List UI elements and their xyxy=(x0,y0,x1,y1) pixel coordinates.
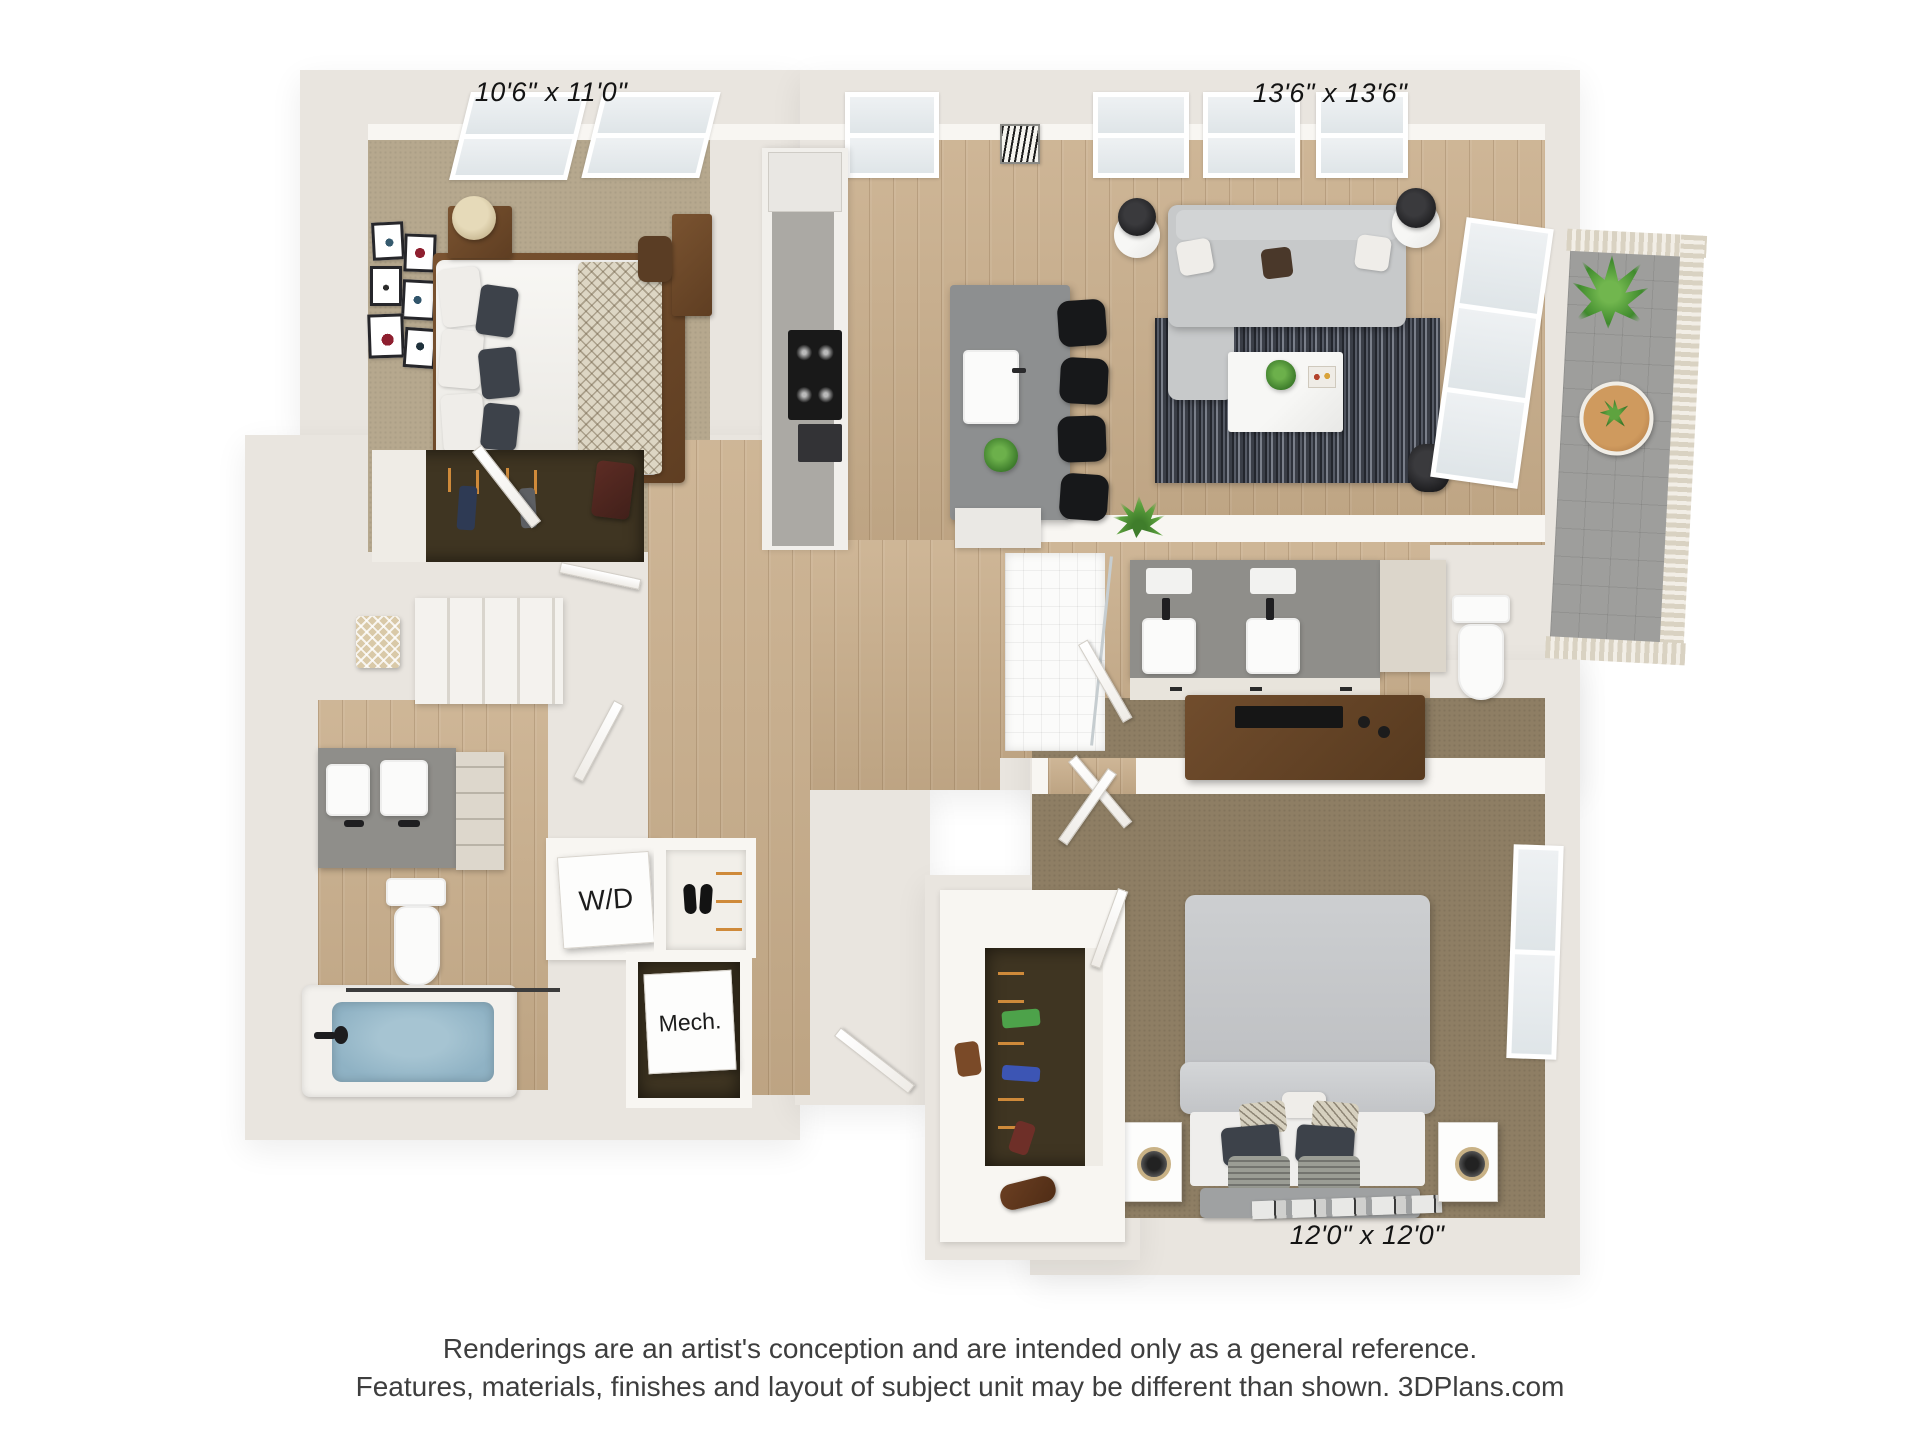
kitchen-window xyxy=(845,92,939,178)
vanity-sink xyxy=(380,760,428,816)
oven-front xyxy=(798,424,842,462)
floor-lamp xyxy=(1118,198,1156,236)
hanging-garment xyxy=(456,485,477,530)
tv xyxy=(1235,706,1343,728)
bar-stool xyxy=(1056,298,1107,347)
mechanical-label: Mech. xyxy=(658,1007,722,1037)
island-base-panel xyxy=(955,508,1041,548)
vanity-shelf xyxy=(1146,568,1192,594)
shower-rod xyxy=(346,988,560,992)
shoe-shelf-edge xyxy=(716,872,742,875)
console-speaker xyxy=(1378,726,1390,738)
window-pane xyxy=(588,138,705,174)
shoe xyxy=(683,884,697,915)
bed1-accent-pillow xyxy=(477,346,520,400)
closet-hanger xyxy=(998,1042,1024,1045)
cooktop xyxy=(788,330,842,420)
picture-frame xyxy=(370,266,402,306)
washer-dryer-label: W/D xyxy=(578,882,635,918)
mechanical-unit: Mech. xyxy=(643,970,736,1074)
hanging-shirt-blue xyxy=(1002,1065,1041,1083)
bar-stool xyxy=(1058,472,1109,521)
vanity-faucet xyxy=(398,820,420,827)
wall-art xyxy=(1000,124,1040,164)
shoe xyxy=(699,884,713,915)
vanity-shelf xyxy=(1250,568,1296,594)
coffee-table-plant xyxy=(1266,360,1296,390)
bedroom1-dimension-label: 10'6" x 11'0" xyxy=(431,79,671,106)
tub-faucet xyxy=(314,1032,336,1039)
table-lamp xyxy=(452,196,496,240)
closet2-shelf xyxy=(1085,948,1103,1166)
picture-frame xyxy=(403,233,436,272)
picture-frame xyxy=(367,313,405,358)
bathtub-water xyxy=(332,1002,494,1082)
balcony xyxy=(1545,229,1707,666)
closet-hanger xyxy=(448,468,451,492)
closet-hanger xyxy=(998,1000,1024,1003)
bedroom2-dimension-label: 12'0" x 12'0" xyxy=(1247,1222,1487,1249)
window-pane xyxy=(850,97,934,133)
window-pane xyxy=(1098,97,1184,133)
vanity-faucet xyxy=(1162,598,1170,620)
vanity-sink xyxy=(1142,618,1196,674)
bed1-pillow xyxy=(438,328,485,389)
desk xyxy=(672,214,712,316)
handbag xyxy=(954,1040,982,1077)
washer-dryer-unit: W/D xyxy=(557,851,655,949)
island-plant xyxy=(984,438,1018,472)
vanity-sink xyxy=(1246,618,1300,674)
bed2-pillow-striped xyxy=(1228,1156,1290,1192)
tub-faucet-knob xyxy=(334,1026,348,1044)
window-pane xyxy=(1098,138,1184,174)
window-pane xyxy=(1448,308,1536,399)
closet1-shelf xyxy=(372,450,426,562)
console-speaker xyxy=(1358,716,1370,728)
closet-hanger xyxy=(998,1098,1024,1101)
closet-hanger xyxy=(998,972,1024,975)
bed2-duvet xyxy=(1185,895,1430,1083)
vanity-faucet xyxy=(344,820,364,827)
shoe-shelf-edge xyxy=(716,928,742,931)
gallery-wall xyxy=(368,222,438,402)
sofa-pillow xyxy=(1354,234,1392,272)
nightstand xyxy=(1438,1122,1498,1202)
window-pane xyxy=(455,139,572,176)
bathroom2-vanity-cabinet xyxy=(1380,560,1446,672)
bed2-pillow-striped xyxy=(1298,1156,1360,1192)
window-pane xyxy=(1321,138,1403,174)
disclaimer-line-1: Renderings are an artist's conception an… xyxy=(0,1330,1920,1368)
floor-plan-rendering: 10'6" x 11'0" 13'6" x 13'6" xyxy=(0,0,1920,1440)
suitcase xyxy=(591,460,636,520)
bathroom1-vanity-cabinet xyxy=(456,752,504,870)
sofa-accent-pillow xyxy=(1260,246,1293,279)
bedroom2-window xyxy=(1506,844,1563,1060)
living-window-1 xyxy=(1093,92,1189,178)
picture-frame xyxy=(371,221,405,261)
hanging-shirt-green xyxy=(1001,1008,1040,1028)
bed1-pillow xyxy=(440,393,486,454)
window-pane xyxy=(850,138,934,174)
speaker-ring xyxy=(1137,1147,1171,1181)
vanity-sink xyxy=(326,764,370,816)
folded-towel xyxy=(356,616,400,668)
floor-lamp xyxy=(1396,188,1436,228)
refrigerator xyxy=(768,152,842,212)
hall-connector-floor xyxy=(810,540,1000,790)
sofa-pillow xyxy=(1175,237,1214,276)
bed1-accent-pillow xyxy=(480,402,521,452)
toilet-tank xyxy=(1452,595,1510,623)
living-dimension-label: 13'6" x 13'6" xyxy=(1210,80,1450,107)
window-pane xyxy=(1208,138,1295,174)
bed1-throw-blanket xyxy=(578,262,662,474)
disclaimer-line-2: Features, materials, finishes and layout… xyxy=(0,1368,1920,1406)
desk-chair xyxy=(638,236,672,282)
bed1-accent-pillow xyxy=(475,284,520,339)
picture-frame xyxy=(401,279,437,321)
toilet-tank xyxy=(386,878,446,906)
speaker-ring xyxy=(1455,1147,1489,1181)
vanity-faucet xyxy=(1266,598,1274,620)
bar-stool xyxy=(1057,415,1107,463)
toilet-bowl xyxy=(1458,624,1504,700)
island-sink xyxy=(963,350,1019,424)
window-pane xyxy=(1436,392,1524,483)
window-pane xyxy=(1515,849,1558,950)
toilet-bowl xyxy=(394,906,440,986)
window-pane xyxy=(1511,954,1554,1055)
bar-stool xyxy=(1059,357,1109,405)
coffee-table-tray xyxy=(1308,366,1336,388)
shoe-shelf-edge xyxy=(716,900,742,903)
linen-shelving xyxy=(415,598,563,704)
nightstand xyxy=(1122,1122,1182,1202)
island-faucet xyxy=(1012,368,1026,373)
window-pane xyxy=(1460,223,1548,314)
